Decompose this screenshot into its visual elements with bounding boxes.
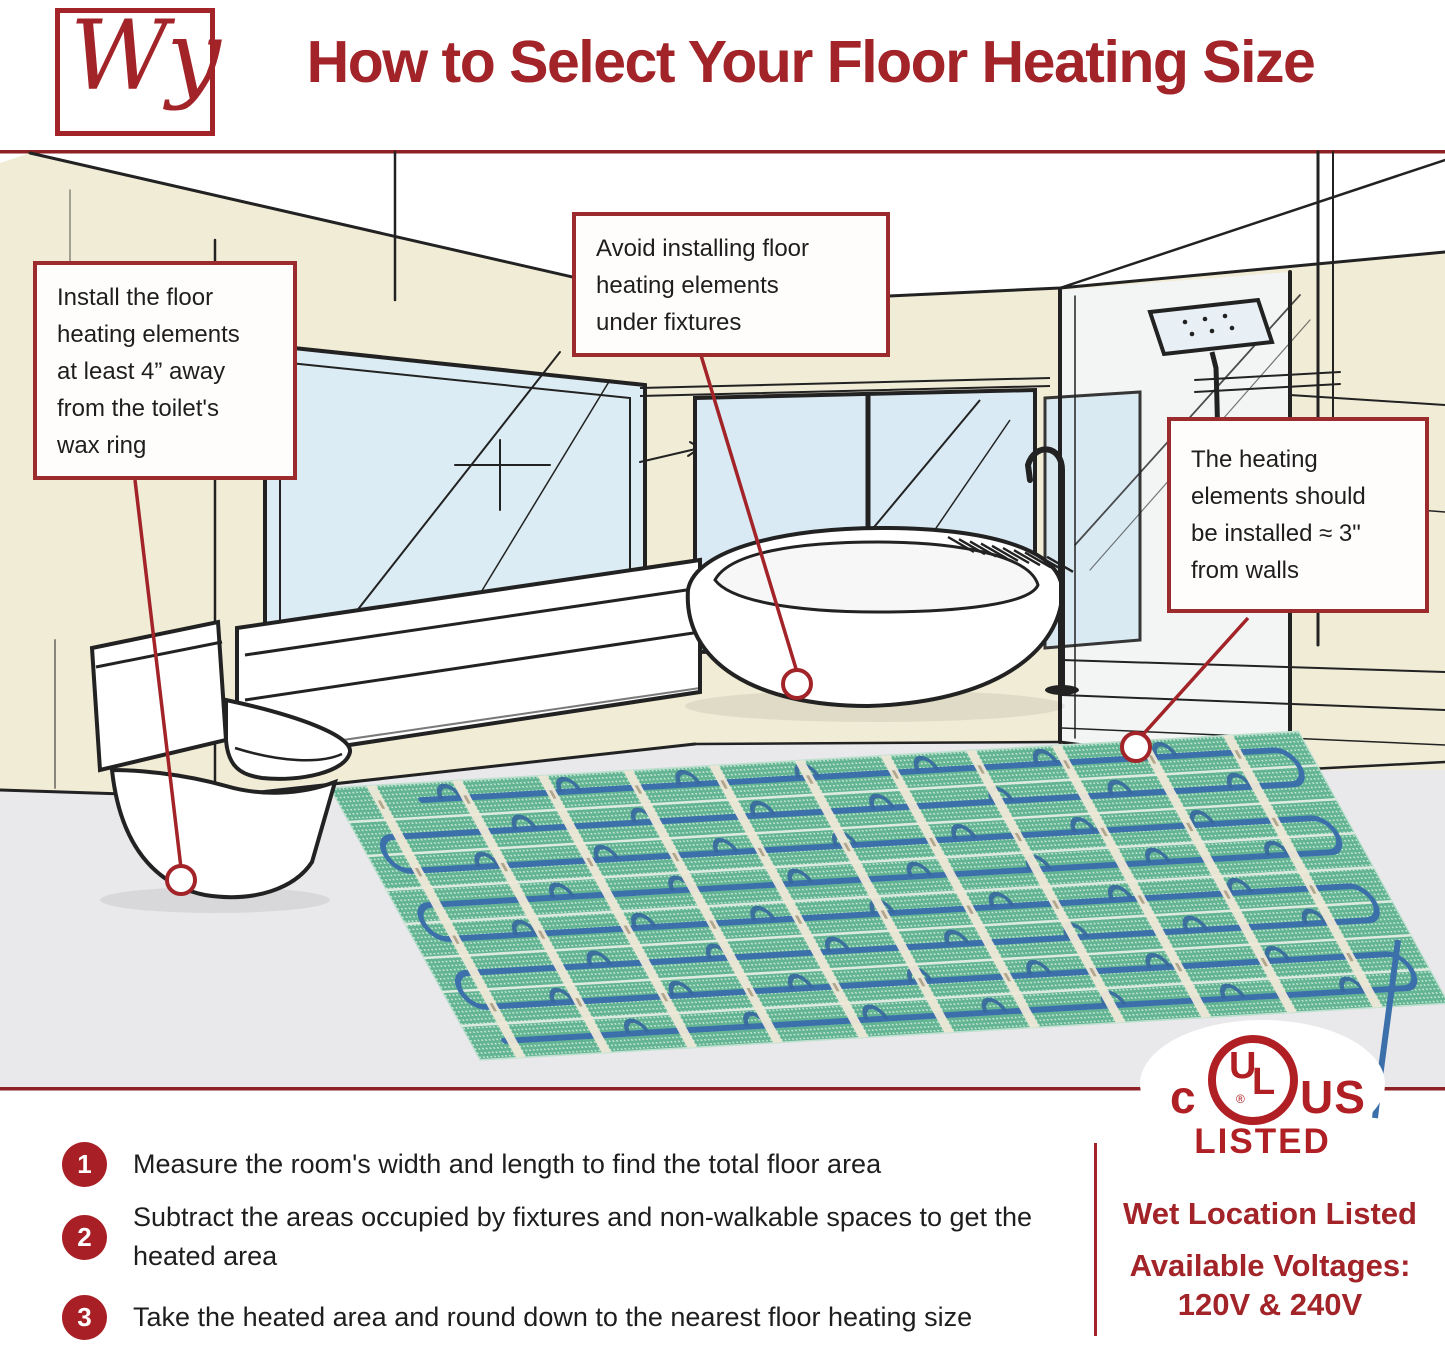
callout-line: heating elements [57,316,279,353]
brand-logo: Wy [55,8,215,136]
callout-line: under fixtures [596,304,872,341]
page-title: How to Select Your Floor Heating Size [228,28,1393,96]
heating-mat [330,731,1445,1060]
infographic-page: Wy How to Select Your Floor Heating Size [0,0,1445,1348]
callout-line: be installed ≈ 3" [1191,515,1411,552]
step-3-badge: 3 [62,1295,107,1340]
wall-marker [1122,733,1150,761]
step-1-badge: 1 [62,1142,107,1187]
step-3-text: Take the heated area and round down to t… [133,1298,1058,1337]
voltages-label: Available Voltages: [1105,1248,1435,1284]
callout-wall-clearance: The heating elements should be installed… [1167,417,1429,613]
step-2-badge: 2 [62,1215,107,1260]
step-1-text: Measure the room's width and length to f… [133,1145,1058,1184]
step-2-text: Subtract the areas occupied by fixtures … [133,1198,1058,1276]
step-1: 1 Measure the room's width and length to… [62,1142,1058,1187]
voltages-value: 120V & 240V [1105,1287,1435,1323]
callout-avoid-fixtures: Avoid installing floor heating elements … [572,212,890,357]
callout-line: at least 4” away [57,353,279,390]
callout-line: Install the floor [57,279,279,316]
wet-location-label: Wet Location Listed [1105,1196,1435,1232]
ul-us-mark: US [1300,1070,1366,1124]
callout-line: from the toilet's [57,390,279,427]
step-3: 3 Take the heated area and round down to… [62,1295,1058,1340]
frame-top-line [0,150,1445,154]
toilet-marker [167,866,195,894]
callout-toilet-clearance: Install the floor heating elements at le… [33,261,297,480]
callout-line: The heating [1191,441,1411,478]
callout-line: Avoid installing floor [596,230,872,267]
callout-line: elements should [1191,478,1411,515]
callout-line: wax ring [57,427,279,464]
callout-line: heating elements [596,267,872,304]
ul-listed-icon: U L ® [1208,1035,1298,1125]
tub-marker [783,670,811,698]
ul-listed-label: LISTED [1150,1122,1375,1162]
ul-canada-mark: c [1170,1070,1196,1124]
brand-logo-text: Wy [70,0,221,114]
section-divider [1094,1143,1097,1336]
callout-line: from walls [1191,552,1411,589]
registered-mark-icon: ® [1236,1092,1245,1106]
ul-letter-l: L [1252,1061,1275,1104]
step-2: 2 Subtract the areas occupied by fixture… [62,1198,1058,1276]
